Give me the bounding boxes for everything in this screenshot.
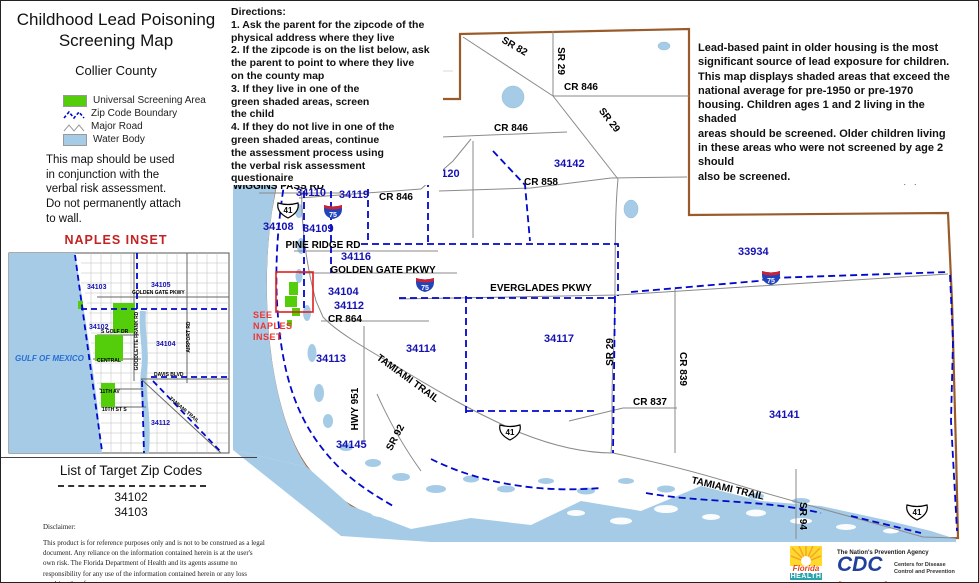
zip-label-34116: 34116 bbox=[341, 251, 371, 263]
florida-sun-icon bbox=[790, 546, 822, 566]
legend-label: Water Body bbox=[93, 134, 145, 145]
zip-label-34113: 34113 bbox=[316, 353, 346, 365]
cdc-wordmark: CDC bbox=[837, 556, 889, 575]
page-title: Childhood Lead Poisoning Screening Map bbox=[5, 9, 227, 52]
cdc-caption-line1: Centers for Disease bbox=[894, 562, 955, 569]
road-label-hwy951: HWY 951 bbox=[350, 387, 361, 430]
target-zip-list-title: List of Target Zip Codes bbox=[31, 463, 231, 478]
road-label-sr29-south: SR 29 bbox=[605, 338, 616, 366]
zip-label-34141: 34141 bbox=[769, 409, 800, 421]
road-label-cr837: CR 837 bbox=[633, 397, 667, 408]
inset-zip-34112: 34112 bbox=[151, 420, 170, 427]
florida-health-logo: Florida HEALTH bbox=[790, 546, 822, 580]
see-label: SEE bbox=[253, 310, 273, 320]
road-label-everglades: EVERGLADES PKWY bbox=[490, 283, 592, 294]
inset-zip-34103: 34103 bbox=[87, 284, 107, 291]
page-title-line1: Childhood Lead Poisoning bbox=[5, 9, 227, 30]
cdc-caption: Centers for Disease Control and Preventi… bbox=[894, 562, 955, 576]
screening-area-swatch bbox=[63, 95, 87, 107]
zip-label-34145: 34145 bbox=[336, 439, 367, 451]
naples-inset-heading: NAPLES INSET bbox=[5, 233, 227, 247]
zip-label-34112: 34112 bbox=[334, 300, 364, 312]
road-label-cr839: CR 839 bbox=[677, 352, 688, 386]
i75-label: 75 bbox=[329, 212, 337, 219]
inset-zip-34105: 34105 bbox=[151, 282, 171, 289]
zip-label-34119: 34119 bbox=[339, 189, 369, 201]
inset-road-s-golf: S GOLF DR bbox=[101, 329, 129, 335]
left-column-divider bbox=[1, 457, 257, 458]
page-title-line2: Screening Map bbox=[5, 30, 227, 51]
disclaimer-body: This product is for reference purposes o… bbox=[43, 538, 265, 583]
usage-note: This map should be used in conjunction w… bbox=[46, 153, 226, 227]
road-label-cr864: CR 864 bbox=[328, 314, 362, 325]
road-label-pine-ridge: PINE RIDGE RD bbox=[285, 240, 360, 251]
inset-zip-34104: 34104 bbox=[156, 341, 176, 348]
directions-panel: Directions: 1. Ask the parent for the zi… bbox=[231, 6, 443, 185]
road-label-cr846-mid: CR 846 bbox=[494, 123, 528, 134]
naples-inset-map: 34103 34105 34102 34104 34112 GOLDEN GAT… bbox=[9, 253, 229, 453]
zip-label-34104: 34104 bbox=[328, 286, 359, 298]
zip-boundary-swatch bbox=[63, 109, 85, 119]
zip-label-34108: 34108 bbox=[263, 221, 294, 233]
page-subtitle: Collier County bbox=[5, 63, 227, 78]
road-label-cr858: CR 858 bbox=[524, 177, 558, 188]
inset-label: INSET bbox=[253, 332, 282, 342]
inset-road-golden-gate: GOLDEN GATE PKWY bbox=[132, 290, 185, 296]
inset-road-goodlette: GOODLETTE FRANK RD bbox=[134, 311, 140, 370]
us41-label: 41 bbox=[284, 206, 293, 215]
road-label-sr29-north: SR 29 bbox=[555, 47, 566, 75]
legend-item-water-body: Water Body bbox=[63, 133, 206, 146]
disclaimer-heading: Disclaimer: bbox=[43, 522, 265, 532]
legend-label: Zip Code Boundary bbox=[91, 108, 177, 119]
disclaimer: Disclaimer: This product is for referenc… bbox=[43, 522, 265, 583]
zip-label-33934: 33934 bbox=[738, 246, 769, 258]
zip-label-34114: 34114 bbox=[406, 343, 437, 355]
zip-label-34142: 34142 bbox=[554, 158, 585, 170]
legend-item-screening: Universal Screening Area bbox=[63, 94, 206, 107]
florida-logo-name: Florida bbox=[790, 564, 822, 573]
i75-label: 75 bbox=[767, 278, 775, 285]
inset-road-central: CENTRAL bbox=[97, 358, 121, 364]
legend-item-major-road: Major Road bbox=[63, 120, 206, 133]
legend: Universal Screening Area Zip Code Bounda… bbox=[63, 94, 206, 146]
inset-road-10th-st: 10TH ST S bbox=[102, 407, 127, 413]
water-body-swatch bbox=[63, 134, 87, 146]
gulf-of-mexico-label: GULF OF MEXICO bbox=[15, 354, 85, 363]
map-sheet: SEE NAPLES INSET 41 41 41 75 75 bbox=[0, 0, 979, 583]
road-label-cr846-west: CR 846 bbox=[379, 192, 413, 203]
legend-label: Major Road bbox=[91, 121, 143, 132]
target-zip-list-separator bbox=[58, 485, 206, 487]
inset-road-airport: AIRPORT RD bbox=[186, 321, 192, 353]
naples-label: NAPLES bbox=[253, 321, 293, 331]
us41-label: 41 bbox=[913, 508, 922, 517]
inset-road-11th-av: 11TH AV bbox=[100, 389, 120, 395]
florida-logo-dept: HEALTH bbox=[790, 573, 822, 580]
cdc-logo: The Nation's Prevention Agency CDC Cente… bbox=[837, 550, 955, 583]
legend-label: Universal Screening Area bbox=[93, 95, 206, 106]
i75-label: 75 bbox=[421, 285, 429, 292]
road-label-cr846-east: CR 846 bbox=[564, 82, 598, 93]
zip-label-34117: 34117 bbox=[544, 333, 574, 345]
major-road-swatch bbox=[63, 122, 85, 132]
cdc-caption-line2: Control and Prevention bbox=[894, 569, 955, 576]
legend-item-zip-boundary: Zip Code Boundary bbox=[63, 107, 206, 120]
road-label-sr94: SR 94 bbox=[797, 502, 808, 530]
zip-label-34109: 34109 bbox=[303, 223, 334, 235]
road-label-golden-gate: GOLDEN GATE PKWY bbox=[330, 265, 436, 276]
target-zip-codes: 34102 34103 bbox=[31, 490, 231, 520]
us41-label: 41 bbox=[506, 428, 515, 437]
inset-road-davis: DAVIS BLVD bbox=[154, 372, 184, 378]
info-panel: Lead-based paint in older housing is the… bbox=[698, 41, 950, 184]
